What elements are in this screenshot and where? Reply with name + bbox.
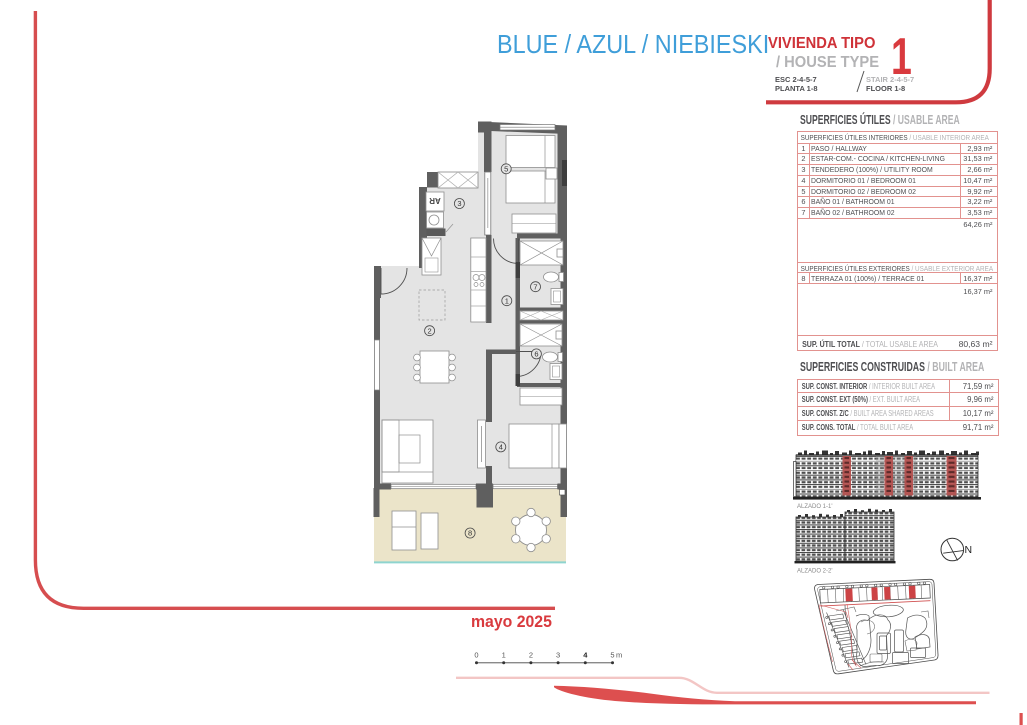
svg-text:4: 4 [583, 651, 588, 660]
svg-text:5: 5 [610, 651, 614, 660]
svg-text:2: 2 [529, 651, 533, 660]
svg-text:ALZADO 2-2': ALZADO 2-2' [797, 569, 833, 575]
svg-text:2: 2 [428, 326, 432, 335]
svg-text:1: 1 [502, 651, 506, 660]
svg-text:N: N [965, 544, 973, 556]
svg-text:5: 5 [504, 164, 508, 173]
svg-text:1: 1 [505, 296, 509, 305]
svg-text:4: 4 [499, 443, 503, 452]
svg-text:ALZADO 1-1': ALZADO 1-1' [797, 504, 833, 510]
svg-text:8: 8 [468, 529, 472, 538]
svg-text:0: 0 [474, 651, 478, 660]
svg-text:3: 3 [556, 651, 560, 660]
svg-text:m: m [616, 651, 622, 660]
svg-text:3: 3 [457, 199, 461, 208]
svg-text:7: 7 [533, 282, 537, 291]
svg-text:AR: AR [429, 196, 441, 205]
svg-text:6: 6 [534, 350, 538, 359]
